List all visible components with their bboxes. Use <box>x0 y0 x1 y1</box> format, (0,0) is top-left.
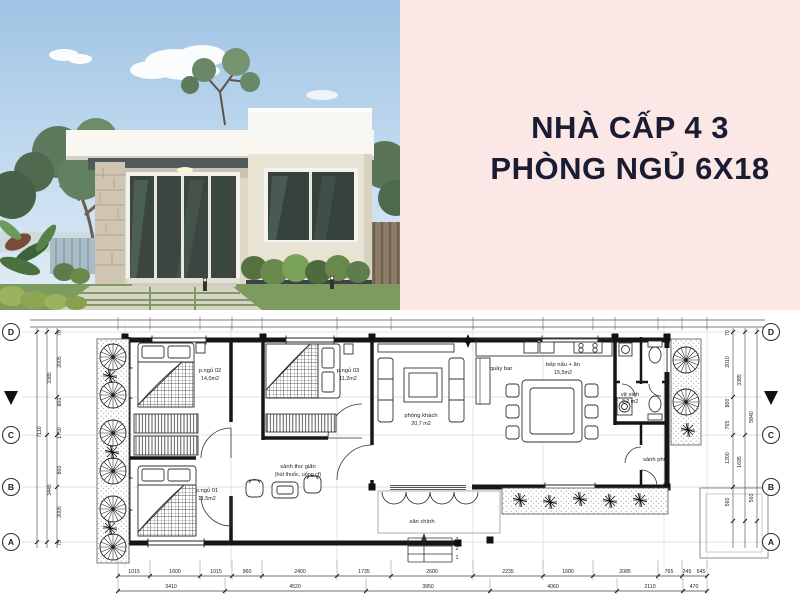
room-name: p.ngủ 02 <box>199 367 222 374</box>
bottom-planter <box>502 488 668 514</box>
entry-doors <box>126 167 240 283</box>
grid-letter: C <box>8 430 14 440</box>
dim-label: 2110 <box>644 584 655 590</box>
step-number: 1 <box>456 555 459 561</box>
step-number: 3 <box>456 537 459 543</box>
dim-label: 560 <box>749 494 755 503</box>
poster-canvas: NHÀ CẤP 4 3 PHÒNG NGỦ 6X18 <box>0 0 800 600</box>
room-name: vệ sinh <box>621 392 639 398</box>
grid-letter: B <box>768 482 774 492</box>
right-dimensions: 2010 800 765 1200 560 3385 1695 560 5840… <box>725 328 759 548</box>
lounge-seating-icon <box>246 475 321 498</box>
section-marker-icon <box>4 391 18 405</box>
floor-plan-drawing: D C B A D C B A p.ngủ 02 14,0m2 p.ngủ 03… <box>0 310 800 600</box>
sliding-door <box>390 486 466 490</box>
path <box>58 286 262 310</box>
grid-letter: D <box>8 327 14 337</box>
grid-letter: A <box>768 537 774 547</box>
dim-label: 3385 <box>47 372 53 384</box>
room-name: p.ngủ 01 <box>196 487 219 494</box>
room-area: 3,2 m2 <box>622 399 638 405</box>
left-dimensions: 2005 800 1750 800 2005 3385 3445 7110 70… <box>35 328 63 548</box>
dim-label: 7110 <box>37 426 43 437</box>
living-room-furniture <box>378 344 464 422</box>
dim-label: 560 <box>725 498 731 507</box>
dim-label: 765 <box>665 569 674 575</box>
left-planter <box>97 339 129 563</box>
porch <box>378 491 500 562</box>
room-area: 15,5m2 <box>554 370 572 376</box>
grid-letter: C <box>768 430 774 440</box>
grid-letter: D <box>768 327 774 337</box>
dim-label: 2010 <box>725 356 731 368</box>
room-name: sảnh phụ <box>643 457 667 463</box>
room-name: sân chính <box>409 519 434 525</box>
room-name: bếp nấu + ăn <box>546 362 580 368</box>
step-numbers: 3 2 1 <box>456 537 459 561</box>
step-number: 2 <box>456 546 459 552</box>
bed-02-icon <box>138 343 205 407</box>
grid-letter: B <box>8 482 14 492</box>
dim-label: 75 <box>57 540 63 546</box>
dim-label: 2400 <box>294 569 306 575</box>
room-note: (hút thuốc, uống cf) <box>275 472 322 478</box>
dim-label: 545 <box>697 569 706 575</box>
dim-label: 1750 <box>57 427 63 439</box>
title-line2: PHÒNG NGỦ 6X18 <box>455 149 800 190</box>
room-area: 11,2m2 <box>339 376 357 382</box>
entry-steps <box>128 278 240 287</box>
dim-label: 1695 <box>737 456 743 468</box>
dim-label: 4520 <box>289 584 301 590</box>
room-area: 20,7 m2 <box>411 421 430 427</box>
house-photo <box>0 0 400 310</box>
dim-label: 960 <box>243 569 252 575</box>
room-area: 14,0m2 <box>201 376 219 382</box>
bed-01-icon <box>138 466 196 536</box>
dim-label: 800 <box>57 398 63 407</box>
dim-label: 70 <box>57 330 63 336</box>
wc-fixtures <box>617 341 662 420</box>
top-dimension-lines <box>30 317 765 330</box>
dim-label: 2005 <box>57 506 63 518</box>
ceiling-light-icon <box>177 167 193 173</box>
bottom-dimensions: 1015 1600 1015 960 2400 1735 2600 2235 1… <box>116 560 709 594</box>
dim-label: 4060 <box>547 584 559 590</box>
room-name: sảnh thư giãn <box>280 464 315 470</box>
dim-label: 470 <box>690 584 699 590</box>
right-planter <box>671 339 701 445</box>
dim-label: 1200 <box>725 452 731 464</box>
dim-label: 3950 <box>422 584 434 590</box>
room-name: p.ngủ 03 <box>337 367 360 374</box>
grid-letter: A <box>8 537 14 547</box>
room-name: quầy bar <box>490 366 513 372</box>
poster-title: NHÀ CẤP 4 3 PHÒNG NGỦ 6X18 <box>455 108 800 190</box>
right-terrace <box>700 488 768 558</box>
dim-label: 1600 <box>562 569 574 575</box>
dim-label: 5840 <box>749 411 755 423</box>
dim-label: 70 <box>725 330 731 336</box>
house <box>66 108 374 284</box>
section-marker-icon <box>764 391 778 405</box>
wardrobe-02-icon <box>134 414 198 455</box>
right-window <box>261 168 361 247</box>
dim-label: 3410 <box>165 584 177 590</box>
floor-plan: D C B A D C B A p.ngủ 02 14,0m2 p.ngủ 03… <box>0 310 800 600</box>
dim-label: 765 <box>725 421 731 430</box>
dim-label: 800 <box>57 466 63 475</box>
wardrobe-03-icon <box>266 414 336 432</box>
dim-label: 2235 <box>502 569 514 575</box>
stone-pier <box>95 162 125 284</box>
dim-label: 1600 <box>169 569 181 575</box>
dim-label: 245 <box>683 569 692 575</box>
room-area: 11,5m2 <box>198 496 216 502</box>
dim-label: 800 <box>725 399 731 408</box>
dim-label: 2085 <box>619 569 631 575</box>
dim-label: 3385 <box>737 374 743 386</box>
dim-label: 1735 <box>358 569 370 575</box>
dim-label: 1015 <box>210 569 222 575</box>
dining-table-icon <box>506 380 598 442</box>
column-markers <box>122 334 671 547</box>
dim-label: 3445 <box>47 484 53 496</box>
title-line1: NHÀ CẤP 4 3 <box>455 108 800 149</box>
room-name: phòng khách <box>404 413 437 419</box>
dim-label: 2005 <box>57 356 63 368</box>
dim-label: 2600 <box>426 569 438 575</box>
dim-label: 1015 <box>128 569 140 575</box>
